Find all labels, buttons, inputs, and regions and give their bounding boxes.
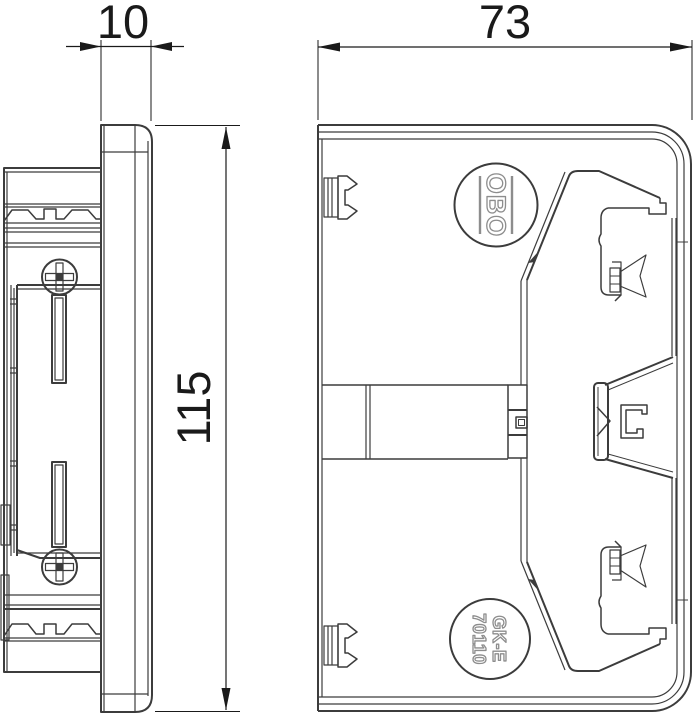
drawing-canvas: OBO GK-E 70110 10 73 115 (0, 0, 695, 720)
dimension-height: 115 (155, 126, 240, 712)
front-center-latch (594, 357, 673, 478)
side-bottom-latch-band (4, 595, 101, 641)
obo-logo-badge: OBO (455, 164, 538, 247)
part-number-badge: GK-E 70110 (450, 599, 530, 679)
part-number-line2: 70110 (469, 613, 489, 665)
side-top-latch-band (4, 204, 101, 247)
dimension-lid-width: 10 (66, 0, 184, 121)
part-number-line1: GK-E (489, 616, 509, 663)
front-hinge-clip-bottom (324, 624, 357, 667)
dimension-lid-width-value: 10 (97, 0, 149, 48)
front-center-band (322, 385, 527, 459)
side-slot-upper (52, 295, 66, 383)
front-latch-top (521, 171, 666, 301)
front-hinge-clip-top (324, 176, 357, 219)
dimension-height-value: 115 (167, 371, 220, 446)
front-latch-bottom (521, 541, 666, 671)
obo-logo-text: OBO (481, 173, 511, 238)
dimension-front-width-value: 73 (479, 0, 531, 48)
technical-drawing: OBO GK-E 70110 10 73 115 (0, 0, 695, 720)
phillips-screw-icon-bottom (42, 550, 77, 585)
front-view: OBO GK-E 70110 (318, 125, 691, 711)
side-lid-profile (101, 125, 152, 712)
side-view (1, 125, 152, 712)
dimension-front-width: 73 (318, 0, 692, 120)
side-slot-lower (52, 462, 66, 547)
